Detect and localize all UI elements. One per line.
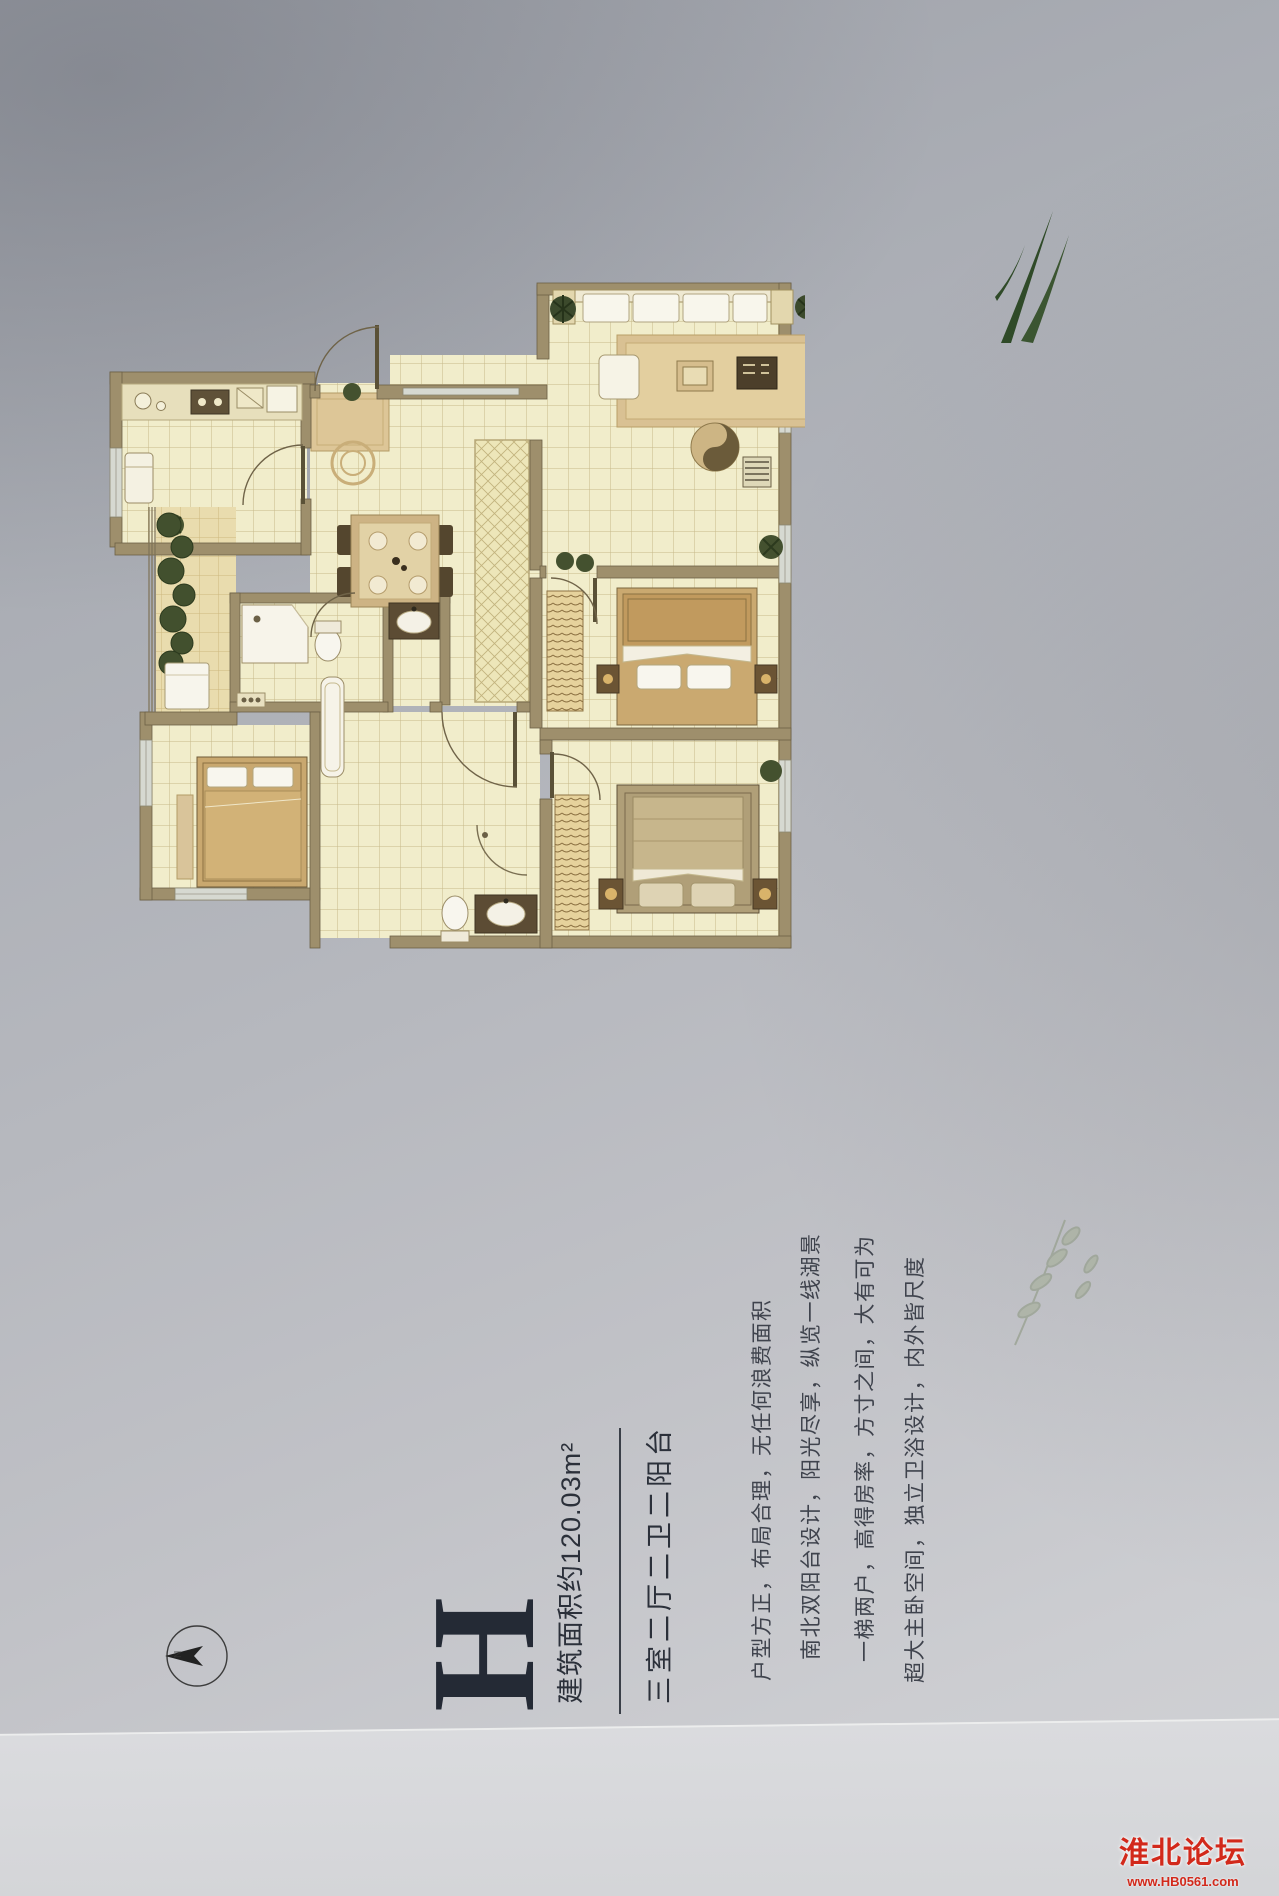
unit-area-label: 建筑面积约120.03m²	[558, 1418, 585, 1704]
bathtub	[321, 677, 344, 777]
plant-icon	[343, 383, 361, 401]
pillow	[207, 767, 247, 787]
hallway-runner	[475, 440, 529, 702]
plant-icon	[760, 760, 782, 782]
text-divider-line	[619, 1428, 621, 1714]
sink-icon	[397, 611, 431, 633]
washing-machine	[165, 663, 209, 709]
counter-appliance	[267, 386, 297, 412]
unit-layout-label: 三室二厅二卫二阳台	[647, 1418, 674, 1704]
bedside-rug	[177, 795, 193, 879]
bedroom-furniture	[177, 757, 307, 887]
toilet-icon	[315, 629, 341, 661]
photo-bottom-light-band	[0, 1718, 1279, 1896]
brochure-photo: N H 建筑面积约120.03m² 三室二厅二卫二阳台 户型方正，布局合理，无任…	[0, 0, 1279, 1896]
feature-line: 南北双阳台设计，阳光尽享，纵览一线湖景	[801, 1253, 822, 1660]
watermark: 淮北论坛 www.HB0561.com	[1098, 1828, 1268, 1889]
unit-type-letter: H	[410, 1582, 558, 1712]
feature-line: 户型方正，布局合理，无任何浪费面积	[752, 1307, 773, 1681]
pillow	[687, 665, 731, 689]
watermark-site-url: www.HB0561.com	[1098, 1874, 1268, 1889]
fridge-icon	[125, 453, 153, 503]
north-arrow-icon	[165, 1646, 203, 1666]
pillow	[253, 767, 293, 787]
sink-icon	[487, 902, 525, 926]
pillow	[691, 883, 735, 907]
sink-icon	[135, 393, 151, 409]
armchair	[599, 355, 639, 399]
wardrobe	[555, 795, 589, 930]
stove-icon	[191, 390, 229, 414]
pillow	[639, 883, 683, 907]
pillow	[637, 665, 681, 689]
entry-door-leaf	[375, 325, 379, 389]
wardrobe	[547, 591, 583, 711]
entry-door-arc	[315, 327, 379, 391]
floor-plan	[85, 195, 805, 955]
toilet-icon	[442, 896, 468, 930]
plant-icon	[556, 552, 574, 570]
feature-line: 一梯两户，高得房率，方寸之间，大有可为	[855, 1257, 876, 1662]
plant-icon	[795, 295, 805, 319]
leaf-decoration-icon	[995, 205, 1085, 345]
watermark-site-name: 淮北论坛	[1098, 1828, 1268, 1872]
north-label: N	[173, 1651, 184, 1658]
compass: N	[158, 1617, 238, 1697]
feature-line: 超大主卧空间，独立卫浴设计，内外皆尺度	[905, 1255, 926, 1683]
leaf-sprig-icon	[995, 1200, 1105, 1350]
